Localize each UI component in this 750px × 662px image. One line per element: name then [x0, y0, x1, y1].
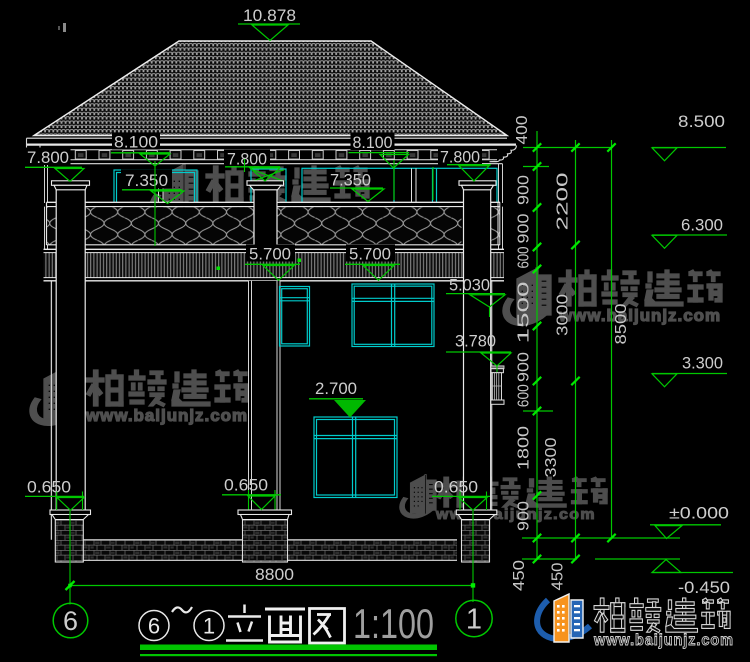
- svg-text:8800: 8800: [255, 565, 294, 584]
- svg-text:5.700: 5.700: [249, 246, 291, 264]
- svg-text:8500: 8500: [613, 303, 630, 344]
- svg-text:8.500: 8.500: [678, 113, 725, 131]
- svg-text:1500: 1500: [516, 281, 533, 344]
- svg-text:900: 900: [516, 501, 533, 531]
- svg-text:450: 450: [550, 562, 567, 590]
- svg-text:3300: 3300: [543, 437, 560, 477]
- svg-text:6.300: 6.300: [681, 217, 723, 235]
- svg-text:3.300: 3.300: [682, 355, 723, 373]
- svg-text:1800: 1800: [516, 426, 533, 470]
- svg-text:400: 400: [514, 115, 531, 144]
- svg-text:www.baijunjz.com: www.baijunjz.com: [593, 632, 734, 649]
- svg-text:8.100: 8.100: [114, 134, 158, 152]
- svg-text:1:100: 1:100: [353, 600, 434, 647]
- svg-text:600: 600: [516, 246, 533, 268]
- svg-text:3000: 3000: [555, 294, 572, 336]
- svg-text:±0.000: ±0.000: [669, 505, 729, 523]
- svg-text:7.800: 7.800: [227, 151, 267, 169]
- svg-text:3.780: 3.780: [455, 333, 496, 351]
- svg-text:7.350: 7.350: [125, 172, 168, 190]
- svg-text:7.800: 7.800: [27, 149, 69, 167]
- svg-text:600: 600: [516, 384, 533, 407]
- svg-text:0.650: 0.650: [27, 479, 71, 497]
- svg-text:900: 900: [516, 213, 533, 243]
- svg-text:6: 6: [63, 606, 78, 636]
- svg-text:0.650: 0.650: [224, 477, 268, 495]
- svg-text:900: 900: [516, 352, 533, 382]
- svg-text:2.700: 2.700: [315, 380, 357, 398]
- svg-text:8.100: 8.100: [353, 134, 393, 152]
- svg-text:0.650: 0.650: [434, 479, 478, 497]
- svg-text:5.700: 5.700: [349, 246, 391, 264]
- svg-text:2200: 2200: [555, 172, 572, 231]
- svg-text:6: 6: [148, 614, 160, 639]
- svg-text:1: 1: [466, 604, 482, 636]
- svg-text:-0.450: -0.450: [678, 579, 730, 597]
- svg-text:10.878: 10.878: [243, 7, 296, 25]
- svg-text:1: 1: [203, 614, 215, 639]
- svg-text:900: 900: [516, 175, 533, 205]
- svg-text:450: 450: [511, 560, 528, 591]
- svg-text:7.350: 7.350: [330, 172, 371, 190]
- svg-text:7.800: 7.800: [440, 149, 480, 167]
- svg-text:5.030: 5.030: [449, 277, 490, 295]
